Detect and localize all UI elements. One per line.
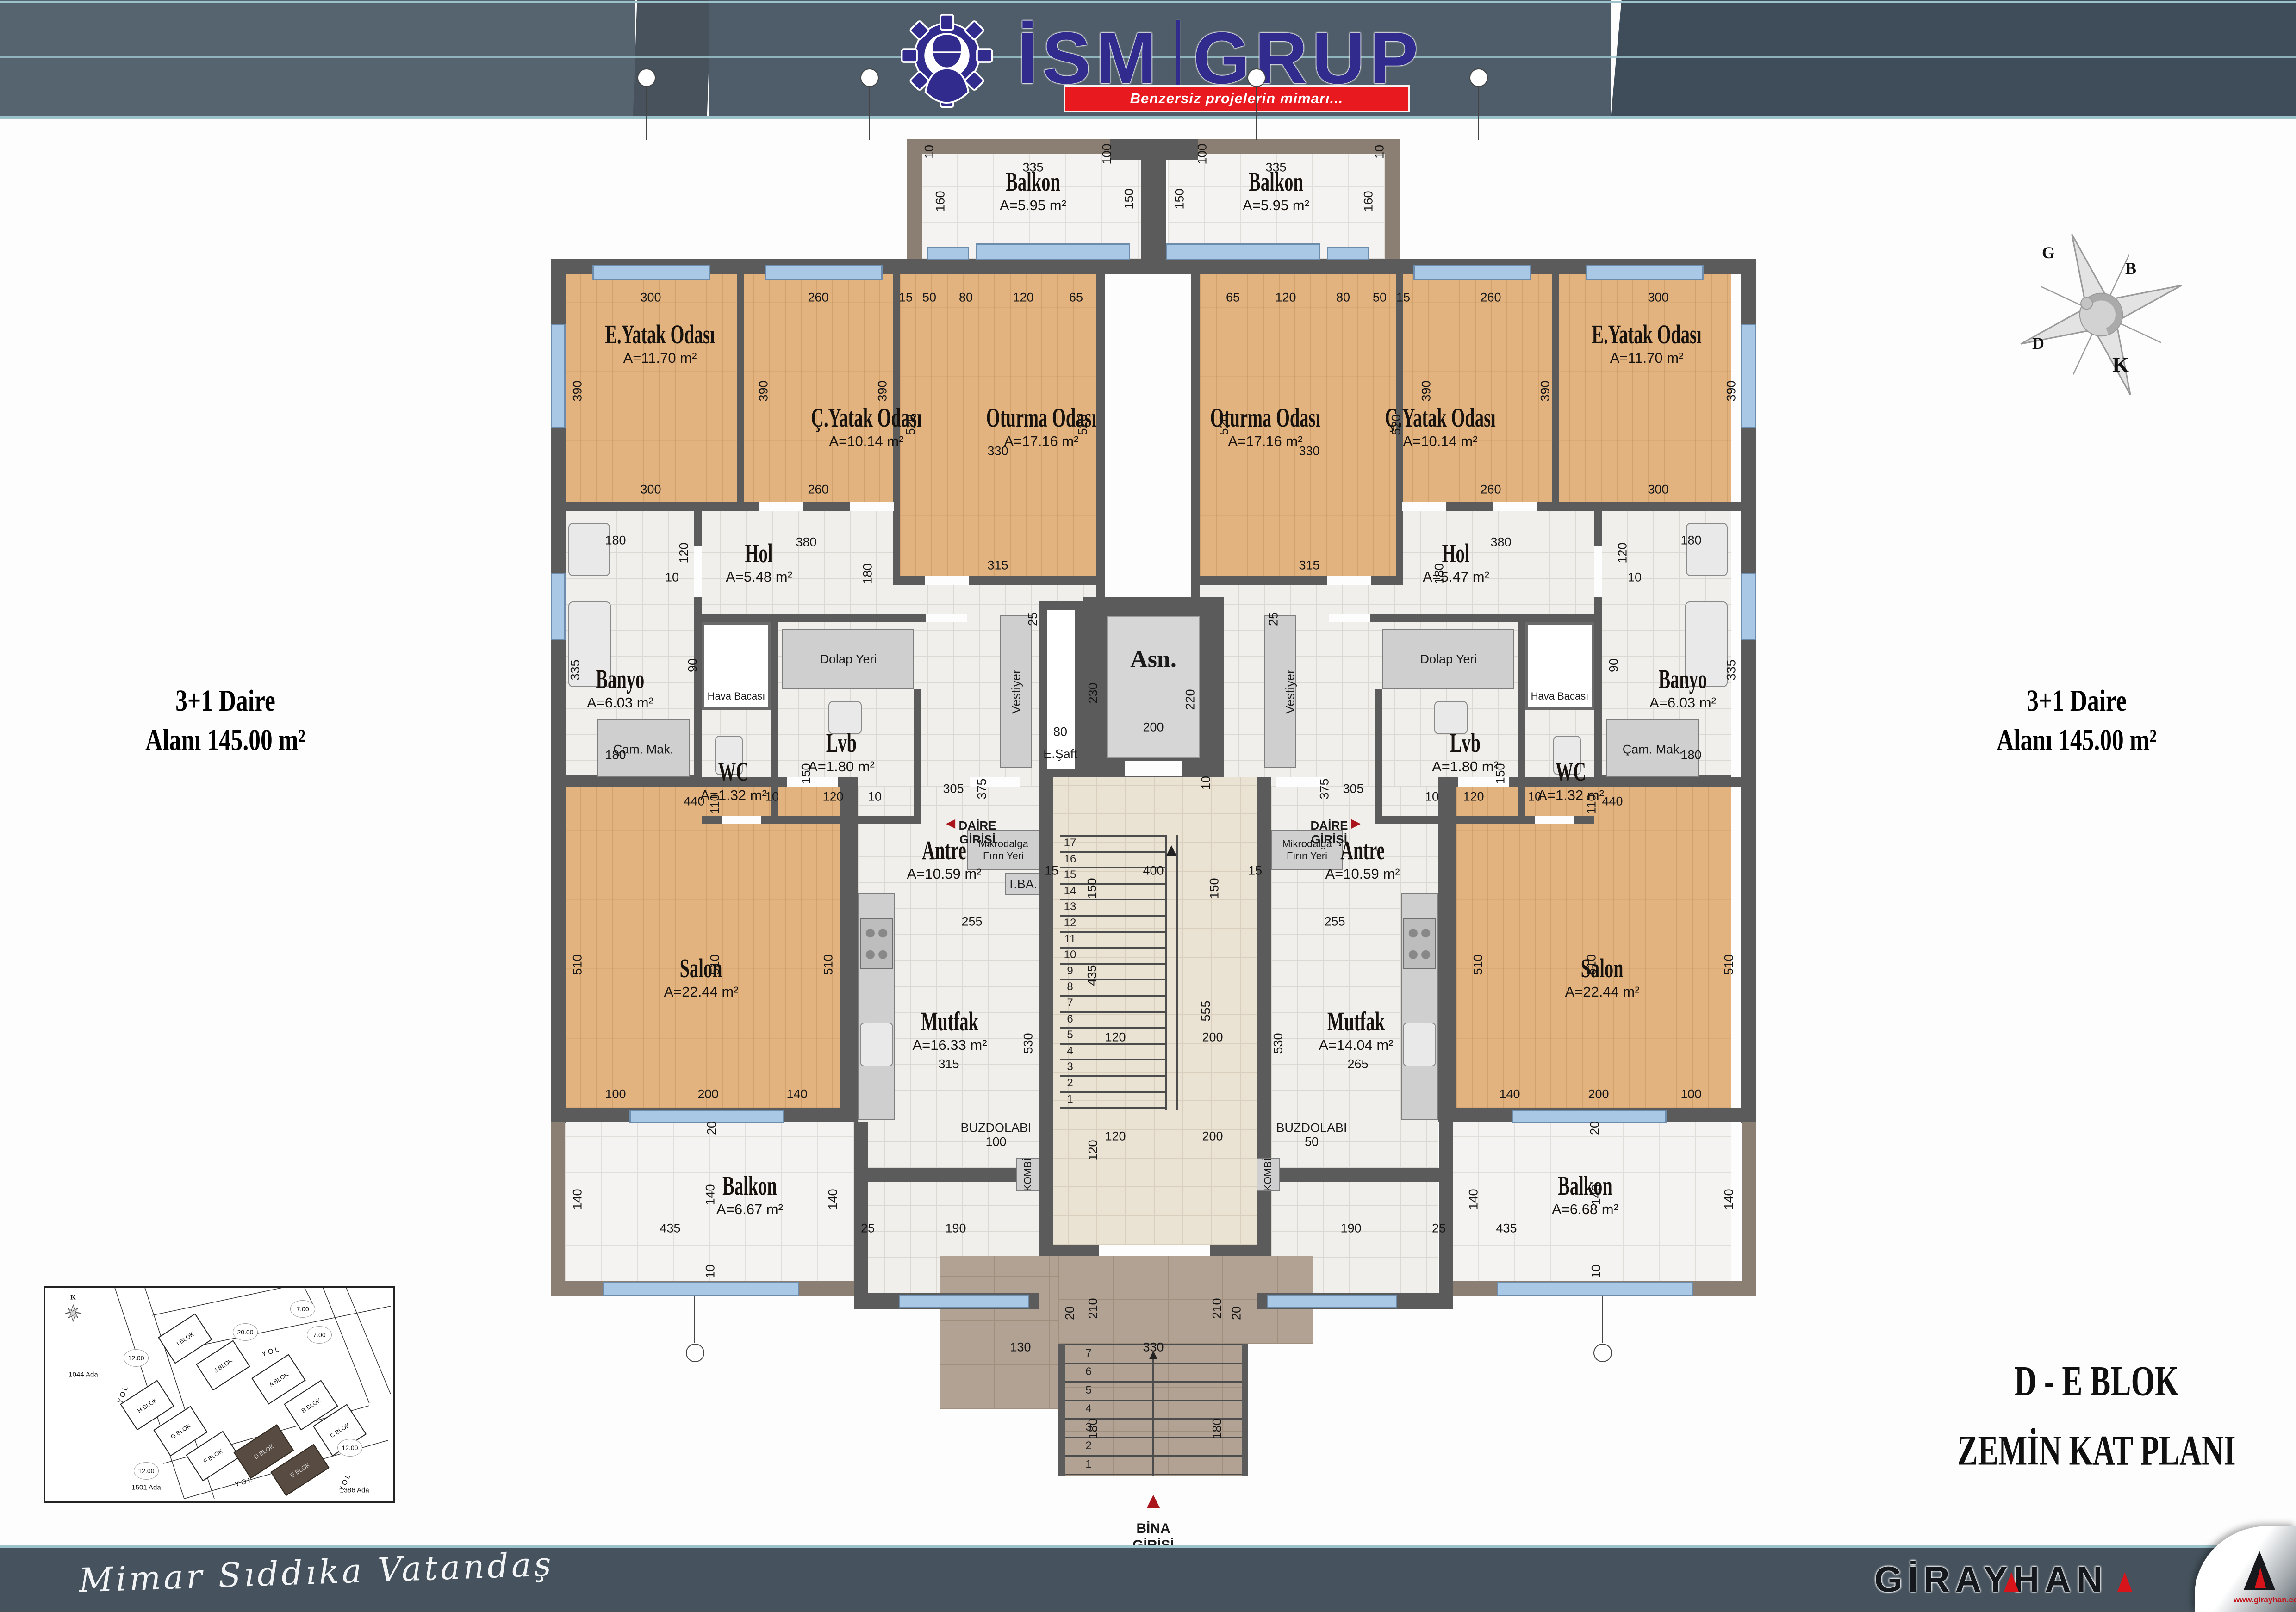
dim-label: 390	[757, 380, 771, 401]
grid-stem	[1256, 86, 1257, 140]
window	[976, 243, 1130, 260]
grid-bubble	[860, 68, 879, 87]
dim-label: 210	[1210, 1298, 1225, 1319]
dim-label: 10	[1373, 145, 1387, 159]
dim-label: 10	[1199, 776, 1213, 790]
site-block-name: B BLOK	[300, 1396, 322, 1414]
plan-label: Hava Bacası	[708, 690, 765, 702]
plan-label: BUZDOLABI	[1276, 1121, 1347, 1135]
plan-label: ◄	[943, 815, 958, 833]
dim-label: 140	[786, 1087, 807, 1102]
dim-label: 20	[1063, 1306, 1077, 1320]
opening	[722, 816, 761, 824]
wood-floor	[1396, 273, 1731, 511]
dim-label: 335	[568, 659, 583, 680]
dim-label: 20	[1230, 1306, 1244, 1320]
opening	[850, 502, 894, 511]
dim-label: 315	[1299, 558, 1319, 573]
wall	[1375, 689, 1382, 824]
elevator-car	[1107, 616, 1200, 758]
room-name: Mutfak	[1327, 1009, 1385, 1035]
room-name: E.Yatak Odası	[605, 322, 715, 348]
stair-tread	[1060, 1091, 1165, 1093]
dim-label: 150	[799, 763, 814, 784]
dim-label: 80	[959, 291, 973, 305]
room-area: A=10.14 m²	[791, 433, 941, 450]
opening	[1329, 614, 1370, 622]
stair-tread	[1060, 995, 1165, 997]
dim-label: 120	[1105, 1030, 1126, 1045]
grid-stem	[869, 86, 870, 140]
dim-label: 120	[822, 790, 843, 804]
room-area: A=6.03 m²	[587, 694, 653, 711]
dim-label: 110	[1585, 794, 1599, 814]
dim-label: 180	[1432, 563, 1447, 584]
room-area: A=10.59 m²	[907, 866, 981, 882]
dim-label: 50	[1373, 291, 1387, 305]
room-label: SalonA=22.44 m²	[1565, 957, 1639, 1000]
dim-label: 10	[868, 790, 882, 804]
entry-step-number: 5	[1085, 1384, 1091, 1397]
dim-label: 120	[1616, 542, 1630, 563]
stair-railing	[1165, 835, 1167, 1110]
room-area: A=11.70 m²	[1573, 350, 1721, 366]
dim-label: 330	[1143, 1340, 1164, 1355]
dim-label: 390	[1538, 380, 1553, 401]
grid-stem	[694, 1296, 695, 1343]
entry-step-number: 1	[1085, 1458, 1091, 1471]
window	[1166, 243, 1320, 260]
stair-number: 1	[1067, 1093, 1073, 1106]
window	[765, 265, 883, 280]
window	[1413, 265, 1531, 280]
dim-label: 120	[1086, 1140, 1101, 1160]
wall	[1396, 502, 1745, 511]
dim-label: 510	[1722, 954, 1736, 975]
dim-label: 520	[1076, 414, 1090, 435]
site-block-name: A BLOK	[268, 1370, 290, 1388]
dim-label: 80	[1053, 725, 1067, 739]
wall	[1039, 777, 1053, 1245]
stair-number: 13	[1064, 900, 1076, 913]
dim-label: 140	[1499, 1087, 1520, 1102]
dim-label: 140	[1722, 1189, 1736, 1209]
dim-label: 230	[1086, 682, 1101, 703]
room-area: A=22.44 m²	[1565, 984, 1639, 1000]
entry-step-number: 6	[1085, 1365, 1091, 1378]
dim-label: 200	[1143, 720, 1164, 735]
parcel-label: 1501 Ada	[131, 1484, 161, 1492]
room-name: WC	[718, 759, 749, 786]
north-mini: K	[70, 1294, 76, 1302]
room-name: Banyo	[1659, 666, 1707, 693]
room-area: A=6.68 m²	[1549, 1201, 1622, 1218]
dim-label: 440	[1602, 794, 1623, 809]
dim-label: 15	[1396, 291, 1410, 305]
fixture	[860, 1023, 893, 1066]
dim-label: 100	[1100, 143, 1114, 164]
grid-bubble	[637, 68, 656, 87]
dim-label: 120	[1105, 1129, 1126, 1144]
dim-label: 25	[1267, 612, 1281, 626]
dim-label: 390	[571, 380, 585, 401]
dim-label: 520	[1217, 414, 1232, 435]
dim-label: 200	[1202, 1129, 1223, 1144]
opening	[1327, 576, 1371, 585]
dim-label: 435	[660, 1221, 680, 1236]
room-name: Banyo	[596, 666, 645, 693]
dim-label: 130	[1010, 1340, 1031, 1355]
dim-label: 330	[987, 444, 1008, 459]
room-name: Balkon	[1558, 1173, 1612, 1200]
wall	[1438, 777, 1456, 1122]
site-block-name: F BLOK	[202, 1447, 224, 1465]
room-label: Ç.Yatak OdasıA=10.14 m²	[791, 406, 941, 450]
dim-label: 180	[605, 748, 626, 763]
dim-label: 440	[684, 794, 704, 809]
window	[1586, 265, 1704, 280]
dim-label: 380	[796, 535, 816, 550]
site-plan: I BLOKJ BLOKA BLOKB BLOKC BLOKH BLOKG BL…	[44, 1286, 395, 1503]
dim-label: 375	[975, 778, 989, 799]
dim-label: 210	[1086, 1298, 1101, 1319]
dim-label: 15	[1248, 864, 1262, 878]
wall	[1110, 139, 1198, 160]
dim-label: 530	[1271, 1033, 1286, 1054]
stair-number: 5	[1067, 1029, 1073, 1042]
balcony-wall	[1742, 1122, 1756, 1296]
parcel-label: 1044 Ada	[68, 1371, 98, 1379]
room-label: MutfakA=14.04 m²	[1317, 1010, 1395, 1054]
dim-label: 200	[1588, 1087, 1609, 1102]
dim-label: 150	[1122, 188, 1137, 209]
dim-label: 260	[808, 483, 828, 497]
room-label: LvbA=1.80 m²	[1432, 732, 1499, 775]
road-width-badge: 12.00	[124, 1349, 149, 1367]
dim-label: 160	[933, 191, 948, 211]
brand-accent	[2004, 1572, 2019, 1592]
dim-label: 120	[677, 542, 691, 563]
dim-label: 140	[703, 1184, 718, 1205]
room-label: LvbA=1.80 m²	[808, 732, 875, 775]
plan-label: DAİRE GİRİŞİ	[959, 819, 996, 847]
plan-label: ►	[1348, 815, 1364, 833]
dim-label: 80	[1336, 291, 1350, 305]
opening	[1594, 546, 1602, 597]
wall	[914, 689, 921, 824]
site-block-name: J BLOK	[212, 1357, 234, 1374]
stair-number: 8	[1067, 980, 1073, 993]
dim-label: 300	[640, 291, 661, 305]
stair-number: 15	[1064, 868, 1076, 881]
room-label: BanyoA=6.03 m²	[1649, 668, 1716, 711]
window	[1741, 324, 1756, 428]
room-area: A=5.95 m²	[996, 197, 1070, 214]
window	[1497, 1282, 1693, 1296]
opening	[759, 502, 803, 511]
room-area: A=6.03 m²	[1649, 694, 1716, 711]
plan-label: BUZDOLABI	[960, 1121, 1031, 1135]
dim-label: 335	[1022, 161, 1043, 175]
room-label: BanyoA=6.03 m²	[587, 668, 653, 711]
site-block-name: E BLOK	[289, 1461, 311, 1479]
dim-label: 220	[1183, 689, 1198, 710]
stair-number: 3	[1067, 1060, 1073, 1073]
opening	[926, 614, 967, 622]
room-area: A=11.70 m²	[586, 350, 734, 366]
stair-railing	[1176, 835, 1178, 1110]
dim-label: 305	[943, 782, 964, 796]
opening	[1099, 1245, 1210, 1256]
stair-number: 4	[1067, 1045, 1073, 1058]
stair-tread	[1060, 1059, 1165, 1060]
room-area: A=14.04 m²	[1317, 1037, 1395, 1054]
dim-label: 50	[922, 291, 936, 305]
dim-label: 305	[1343, 782, 1363, 796]
dim-label: 315	[938, 1057, 959, 1072]
dim-label: 335	[1724, 659, 1739, 680]
road-width-badge: 12.00	[337, 1439, 362, 1457]
dim-label: 20	[1588, 1121, 1602, 1135]
grid-stem	[1478, 86, 1479, 140]
dim-label: 190	[1340, 1221, 1361, 1236]
dim-label: 180	[1210, 1418, 1225, 1439]
room-area: A=5.95 m²	[1239, 197, 1313, 214]
dim-label: 10	[922, 145, 937, 159]
plan-label: Dolap Yeri	[820, 652, 877, 667]
room-name: E.Yatak Odası	[1592, 322, 1701, 348]
room-label: Oturma OdasıA=17.16 m²	[1191, 406, 1340, 450]
room-area: A=16.33 m²	[911, 1037, 989, 1054]
dim-label: 140	[1589, 1184, 1604, 1205]
dim-label: 180	[1086, 1418, 1101, 1439]
plan-label: ▲	[1142, 1487, 1165, 1514]
dim-label: 255	[961, 915, 982, 929]
site-block-name: G BLOK	[169, 1422, 192, 1440]
dim-label: 200	[697, 1087, 718, 1102]
dim-label: 150	[1085, 878, 1100, 899]
room-label: Ç.Yatak OdasıA=10.14 m²	[1365, 406, 1515, 450]
wall	[551, 502, 900, 511]
dim-label: 100	[1195, 143, 1210, 164]
dim-label: 90	[686, 658, 700, 672]
road-width-badge: 12.00	[134, 1462, 159, 1480]
pavement	[940, 1256, 1078, 1409]
site-block-name: C BLOK	[329, 1421, 351, 1439]
wall	[737, 259, 744, 511]
fixture	[1403, 1023, 1436, 1066]
room-label: SalonA=22.44 m²	[664, 957, 738, 1000]
dim-label: 435	[1085, 965, 1100, 986]
stove	[1403, 918, 1436, 969]
window	[1267, 1295, 1397, 1308]
room-label: HolA=5.48 m²	[726, 542, 792, 585]
room-name: WC	[1556, 759, 1586, 786]
stair-number: 2	[1067, 1077, 1073, 1090]
dim-label: 15	[1045, 864, 1058, 878]
wall	[854, 1168, 1039, 1182]
room-name: Mutfak	[921, 1009, 978, 1035]
dim-label: 180	[1680, 748, 1701, 763]
footer-line-top	[0, 1545, 2296, 1548]
dim-label: 200	[1202, 1030, 1223, 1045]
stair-tread	[1060, 963, 1165, 965]
wall	[840, 777, 858, 1122]
plan-label: Hava Bacası	[1531, 690, 1589, 702]
plan-label: Dolap Yeri	[1420, 652, 1477, 667]
dim-label: 335	[1265, 161, 1286, 175]
dim-label: 140	[1467, 1189, 1481, 1209]
wall	[1552, 259, 1559, 511]
stove	[860, 918, 893, 969]
dim-label: 10	[665, 570, 679, 585]
balcony-wall	[1385, 139, 1400, 259]
stair-number: 16	[1064, 853, 1076, 866]
dim-label: 400	[1143, 864, 1164, 878]
wood-floor	[1456, 787, 1731, 1108]
opening	[1402, 502, 1446, 511]
window	[551, 324, 566, 428]
floor-plan-sheet: İSM GRUP Benzersiz projelerin mimarı... …	[0, 0, 2296, 1612]
plan-label: KOMBİ	[1022, 1159, 1034, 1191]
stair-tread	[1060, 1107, 1165, 1109]
entry-step-number: 7	[1085, 1347, 1091, 1360]
window	[1327, 247, 1369, 260]
window	[603, 1282, 799, 1296]
site-block-name: H BLOK	[136, 1396, 158, 1414]
dim-label: 265	[1347, 1057, 1368, 1072]
site-block-name: D BLOK	[253, 1443, 275, 1461]
dim-label: 25	[1026, 612, 1040, 626]
dim-label: 100	[605, 1087, 626, 1102]
dim-label: 520	[904, 414, 918, 435]
stair-number: 6	[1067, 1013, 1073, 1026]
window	[592, 265, 710, 280]
wall	[854, 1122, 868, 1309]
wall	[1342, 614, 1594, 622]
stair-tread	[1060, 1027, 1165, 1029]
dim-label: 100	[985, 1135, 1006, 1149]
dim-label: 435	[1496, 1221, 1517, 1236]
grid-stem	[1602, 1296, 1603, 1343]
dim-label: 50	[1305, 1135, 1319, 1149]
dim-label: 510	[1471, 954, 1486, 975]
plan-label: Çam. Mak.	[1623, 743, 1683, 757]
wood-floor	[565, 273, 900, 511]
room-area: A=1.80 m²	[808, 758, 875, 775]
dim-label: 180	[1680, 533, 1701, 548]
stair-number: 12	[1064, 917, 1076, 930]
room-area: A=10.59 m²	[1325, 866, 1400, 882]
plan-label: T.BA.	[1008, 877, 1038, 892]
room-area: A=22.44 m²	[664, 984, 738, 1000]
stair-number: 10	[1064, 949, 1076, 961]
wall	[1439, 1122, 1453, 1309]
room-name: Hol	[745, 540, 773, 567]
room-label: E.Yatak OdasıA=11.70 m²	[586, 323, 734, 366]
room-label: BalkonA=6.68 m²	[1549, 1174, 1622, 1218]
wall	[551, 259, 1756, 274]
plan-label: DAİRE GİRİŞİ	[1311, 819, 1348, 847]
dim-label: 330	[1299, 444, 1319, 459]
dim-label: 120	[1275, 291, 1296, 305]
dim-label: 260	[1480, 291, 1501, 305]
dim-label: 300	[640, 483, 661, 497]
dim-label: 150	[1173, 188, 1187, 209]
dim-label: 110	[708, 794, 722, 814]
room-area: A=1.80 m²	[1432, 758, 1499, 775]
balcony-wall	[551, 1122, 565, 1296]
road-width-badge: 20.00	[233, 1323, 258, 1341]
girayhan-url: www.girayhan.com.tr	[2234, 1595, 2296, 1605]
opening	[1493, 502, 1537, 511]
dim-label: 520	[1389, 414, 1404, 435]
dim-label: 120	[1463, 790, 1484, 804]
road-width-badge: 7.00	[290, 1300, 315, 1318]
dim-label: 530	[1021, 1033, 1036, 1054]
entry-step-number: 2	[1085, 1439, 1091, 1452]
dim-label: 300	[1648, 291, 1668, 305]
grid-bubble	[686, 1344, 704, 1362]
dim-label: 375	[1318, 778, 1332, 799]
room-area: A=10.14 m²	[1365, 433, 1515, 450]
girayhan-brand: GİRAYHAN	[1874, 1558, 2108, 1600]
room-name: Balkon	[722, 1173, 777, 1200]
stair-number: 11	[1064, 933, 1076, 946]
stair-tread	[1060, 979, 1165, 980]
dim-label: 65	[1226, 291, 1240, 305]
dim-label: 120	[1013, 291, 1033, 305]
dim-label: 140	[571, 1189, 585, 1209]
room-name: Lvb	[826, 730, 857, 757]
stair-number: 7	[1067, 997, 1073, 1010]
dim-label: 10	[1589, 1265, 1604, 1278]
wood-floor	[565, 787, 840, 1108]
grid-bubble	[1593, 1344, 1612, 1362]
plan-label: E.Şaft	[1043, 747, 1077, 762]
dim-label: 260	[808, 291, 828, 305]
dim-label: 15	[899, 291, 913, 305]
window	[1741, 573, 1756, 640]
room-label: Oturma OdasıA=17.16 m²	[967, 406, 1116, 450]
grid-bubble	[1469, 68, 1488, 87]
plan-label: ▲	[1162, 840, 1181, 861]
room-area: A=6.67 m²	[713, 1201, 787, 1218]
plan-label: Vestiyer	[1283, 670, 1298, 714]
dim-label: 20	[705, 1121, 719, 1135]
dim-label: 510	[708, 954, 722, 975]
shaft-inner	[1047, 610, 1075, 769]
fixture	[568, 523, 610, 576]
dim-label: 390	[1724, 380, 1739, 401]
opening	[694, 546, 702, 597]
dim-label: 65	[1069, 291, 1083, 305]
dim-label: 10	[765, 790, 779, 804]
opening	[1125, 761, 1182, 776]
opening	[1535, 816, 1574, 824]
dim-label: 390	[876, 380, 890, 401]
wall	[1518, 622, 1525, 824]
site-block-name: I BLOK	[175, 1330, 195, 1346]
opening	[925, 576, 969, 585]
stair-number: 9	[1067, 965, 1073, 978]
dim-label: 160	[1362, 191, 1376, 211]
dim-label: 380	[1490, 535, 1511, 550]
stair-tread	[1060, 1011, 1165, 1013]
room-label: BalkonA=5.95 m²	[996, 170, 1070, 214]
dim-label: 180	[861, 563, 875, 584]
dim-label: 10	[1528, 790, 1542, 804]
